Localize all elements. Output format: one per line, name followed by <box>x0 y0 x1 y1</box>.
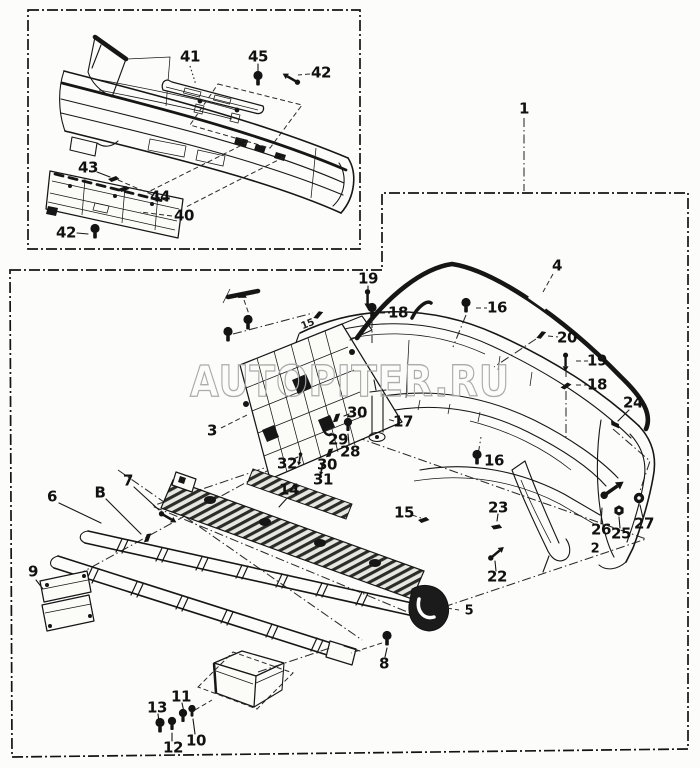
diagram-line-art: AUTOPITER.RU <box>0 0 700 768</box>
parts-diagram-page: AUTOPITER.RU 414542434440421419181620191… <box>0 0 700 768</box>
main-panel-border <box>10 193 688 757</box>
inset-bumper-drawing <box>46 37 354 238</box>
watermark-text: AUTOPITER.RU <box>190 357 510 407</box>
